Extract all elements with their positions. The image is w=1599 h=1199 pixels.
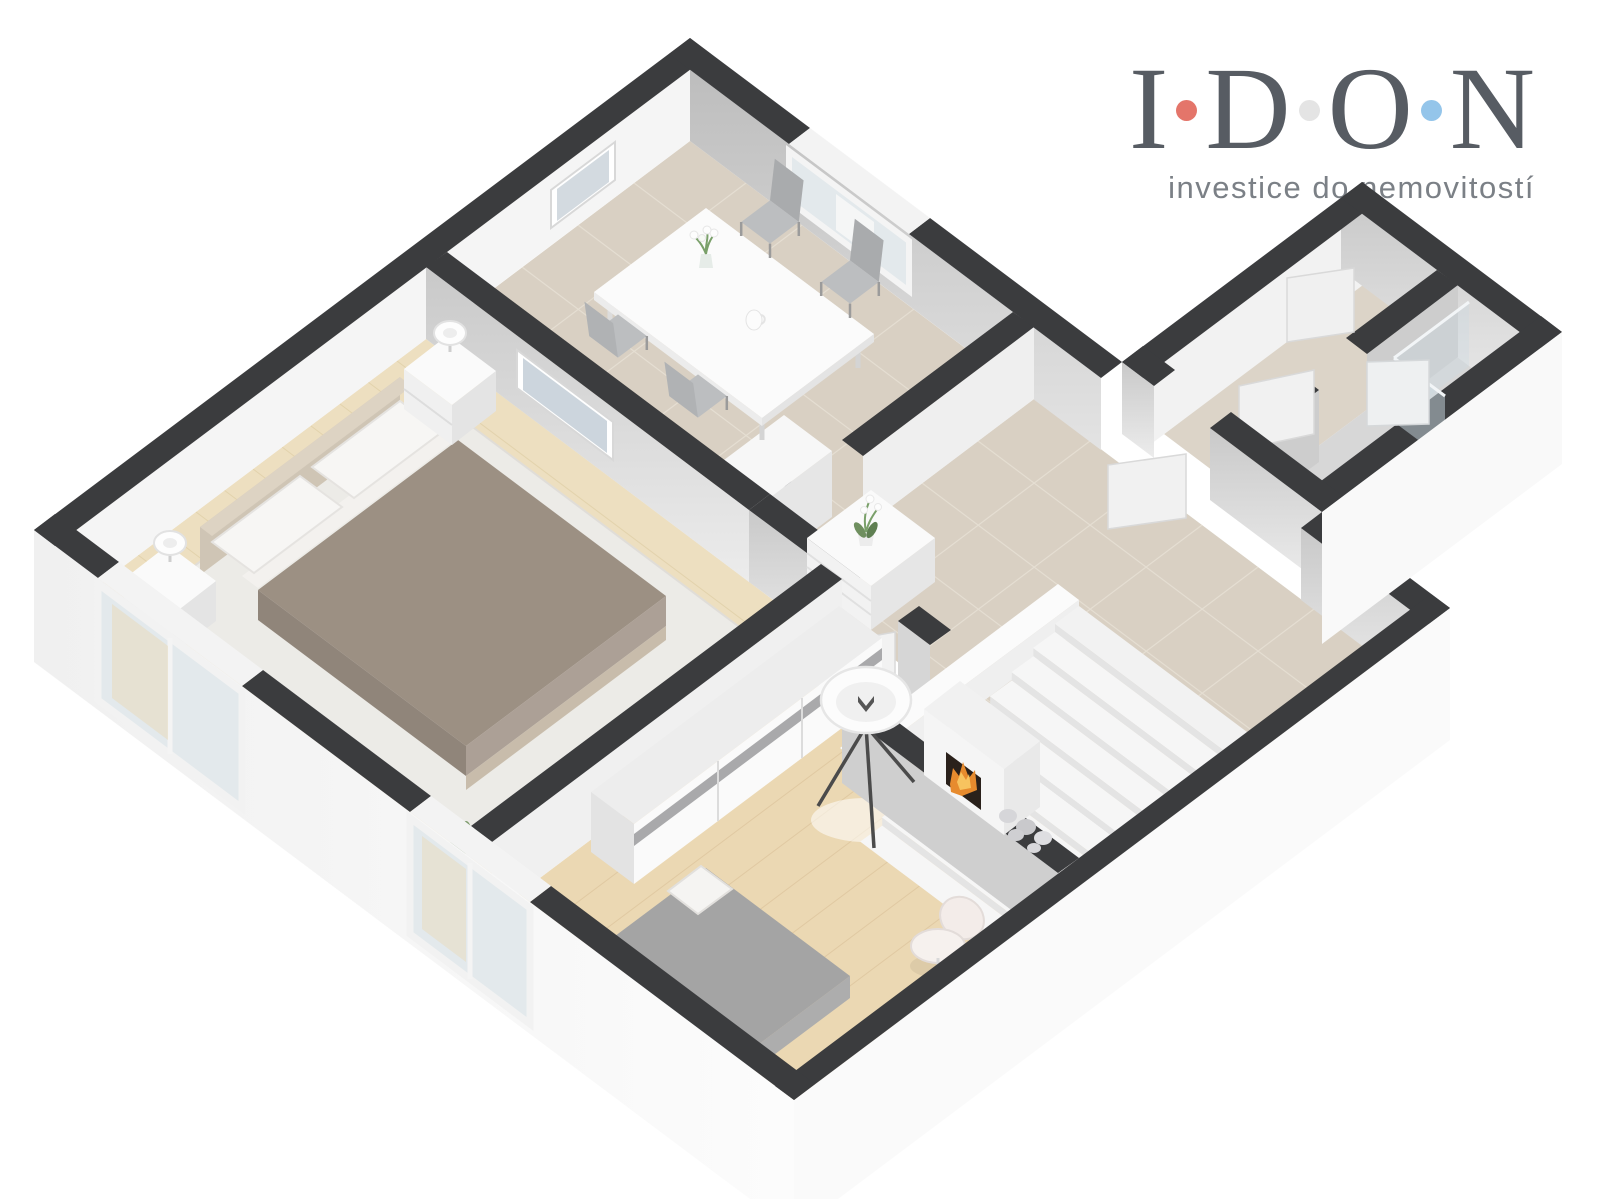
page: IDON investice do nemovitostí xyxy=(0,0,1599,1199)
door-leaf xyxy=(1367,360,1429,426)
floor-plan-render xyxy=(0,0,1599,1199)
door-leaf xyxy=(1287,268,1354,342)
door-leaf xyxy=(1108,454,1186,529)
